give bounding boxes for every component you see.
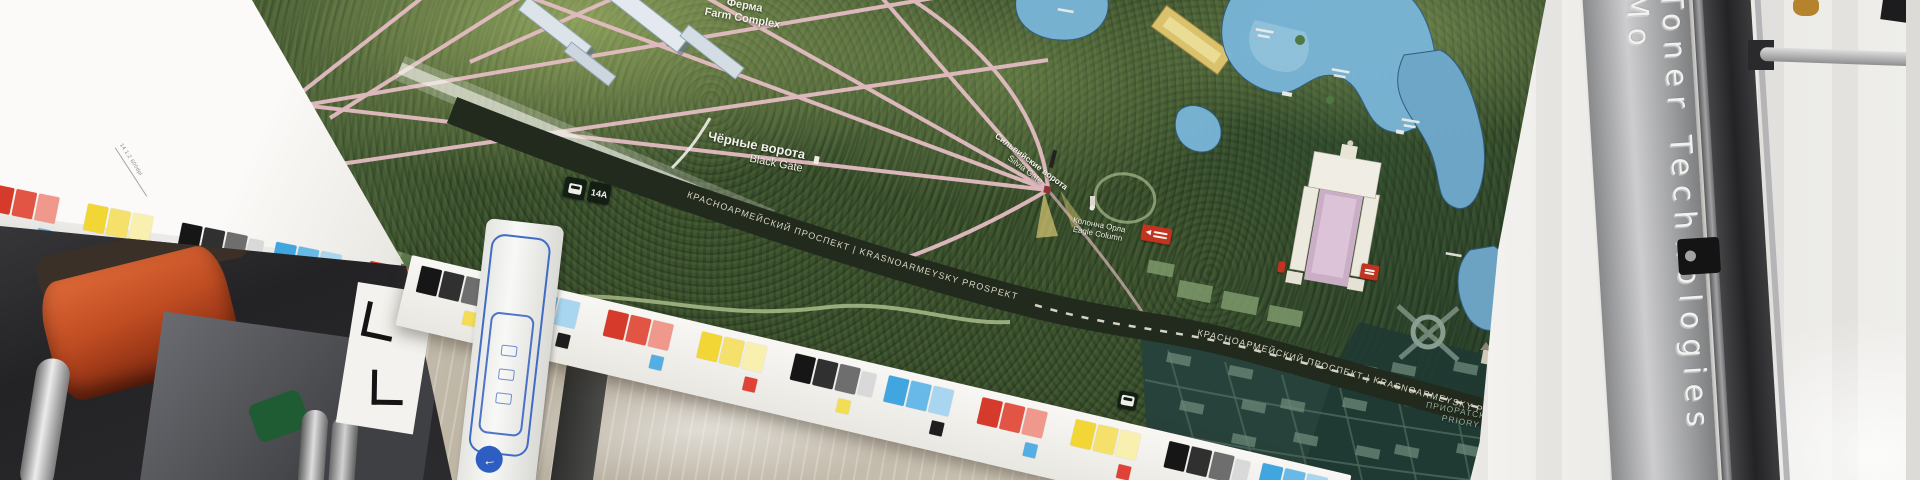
registration-mark-icon [372,370,404,406]
panel-edge [1906,0,1920,480]
road-label: КРАСНОАРМЕЙСКИЙ ПРОСПЕКТ | KRASNOARMEYSK… [686,189,1020,301]
bus-icon [1117,390,1139,411]
left-arrow-icon: ◀ [1145,229,1152,237]
guide-glyph [495,392,512,405]
rail-clip [1677,237,1721,275]
bus-route-number: 14А [587,181,613,206]
stables-building [1151,5,1233,74]
sign-text-marks [1153,229,1168,241]
screw-icon [1685,250,1697,262]
arrow-glyph: ← [481,450,497,468]
bus-icon [562,176,588,201]
lakes [1016,0,1516,330]
svg-text:КРАСНОАРМЕЙСКИЙ ПРОСПЕКТ | KRA: КРАСНОАРМЕЙСКИЙ ПРОСПЕКТ | KRASNOARMEYSK… [686,189,1020,301]
chrome-rod [18,356,72,480]
sponge-block [1793,0,1819,16]
guide-glyph [498,368,515,381]
photo-wide-format-printer: КРАСНОАРМЕЙСКИЙ ПРОСПЕКТ | KRASNOARMEYSK… [0,0,1920,480]
amphitheatre [1090,169,1159,227]
registration-mark-icon [361,301,399,342]
guide-glyph [501,344,518,357]
ticket-office-sign [1359,263,1379,280]
sign-text-marks [1364,267,1375,277]
bus-route-label: 14А [590,187,608,200]
chrome-roller [297,409,329,480]
metal-rod [1760,47,1920,67]
bus-stop-badge-2 [1117,390,1139,411]
